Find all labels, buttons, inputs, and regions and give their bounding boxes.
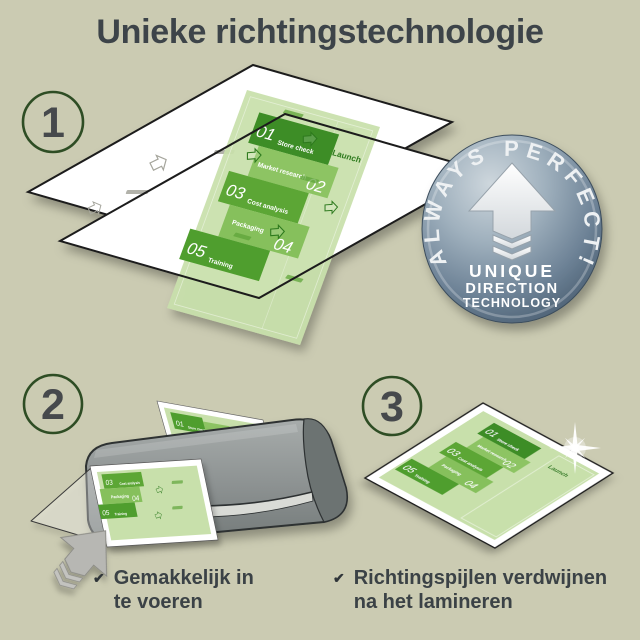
always-perfect-badge: ALWAYS PERFECT! UNIQUE DIRECTION TECHNOL…: [419, 135, 606, 323]
check-icon: ✔: [333, 566, 345, 614]
step-number: 3: [380, 383, 404, 431]
step1-marker: 1: [23, 92, 83, 152]
badge-line2: DIRECTION: [465, 281, 558, 297]
caption-line: na het lamineren: [354, 590, 607, 614]
block-label: Training: [114, 512, 127, 517]
step-number: 2: [41, 381, 65, 429]
caption-easy-feed: ✔ Gemakkelijk in te voeren: [93, 566, 254, 614]
output-document-group: 03 Cost analysis Packaging 04 05 Trainin…: [31, 459, 218, 547]
step3-marker: 3: [363, 377, 421, 435]
step-number: 1: [41, 99, 65, 147]
illustration-layer: 01 Store check Market research 02 03 Cos…: [0, 0, 640, 640]
badge-line3: TECHNOLOGY: [463, 296, 561, 310]
caption-line: Richtingspijlen verdwijnen: [354, 566, 607, 590]
caption-line: Gemakkelijk in: [114, 566, 254, 590]
step1-illustration: 01 Store check Market research 02 03 Cos…: [28, 65, 484, 345]
caption-arrows-disappear: ✔ Richtingspijlen verdwijnen na het lami…: [333, 566, 607, 614]
badge-line1: UNIQUE: [469, 261, 555, 281]
caption-line: te voeren: [114, 590, 254, 614]
infographic-canvas: Unieke richtingstechnologie: [0, 0, 640, 640]
step2-marker: 2: [24, 375, 82, 433]
check-icon: ✔: [93, 566, 105, 614]
